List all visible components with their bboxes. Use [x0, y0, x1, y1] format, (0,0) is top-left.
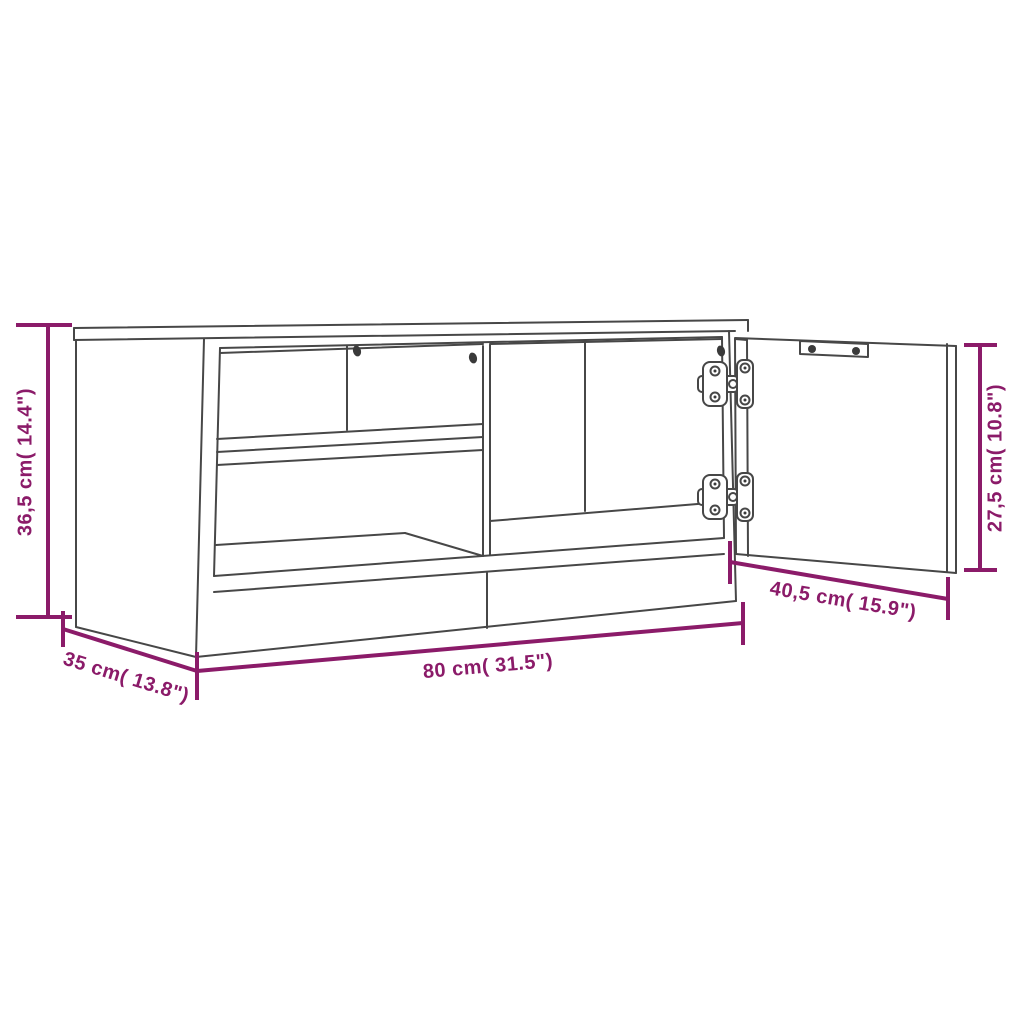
open-door — [735, 338, 956, 573]
top-panel — [74, 320, 748, 340]
cabinet-line-drawing — [0, 0, 1024, 1024]
center-divider — [483, 345, 490, 556]
bottom-board — [214, 502, 724, 592]
hinge-bottom — [698, 473, 753, 521]
cabinet-carcass — [74, 320, 748, 657]
hinge-top — [698, 360, 753, 408]
dimension-label-height: 36,5 cm( 14.4") — [15, 388, 38, 536]
dimension-lines — [16, 325, 997, 700]
back-wall-screws — [352, 345, 727, 365]
furniture-dimension-diagram: 36,5 cm( 14.4") 35 cm( 13.8") 80 cm( 31.… — [0, 0, 1024, 1024]
left-side-panel — [76, 339, 220, 657]
middle-shelf — [217, 424, 483, 465]
dimension-label-door-height: 27,5 cm( 10.8") — [985, 384, 1008, 532]
plinth-band — [196, 573, 736, 657]
door-mounting-plate — [800, 341, 868, 357]
